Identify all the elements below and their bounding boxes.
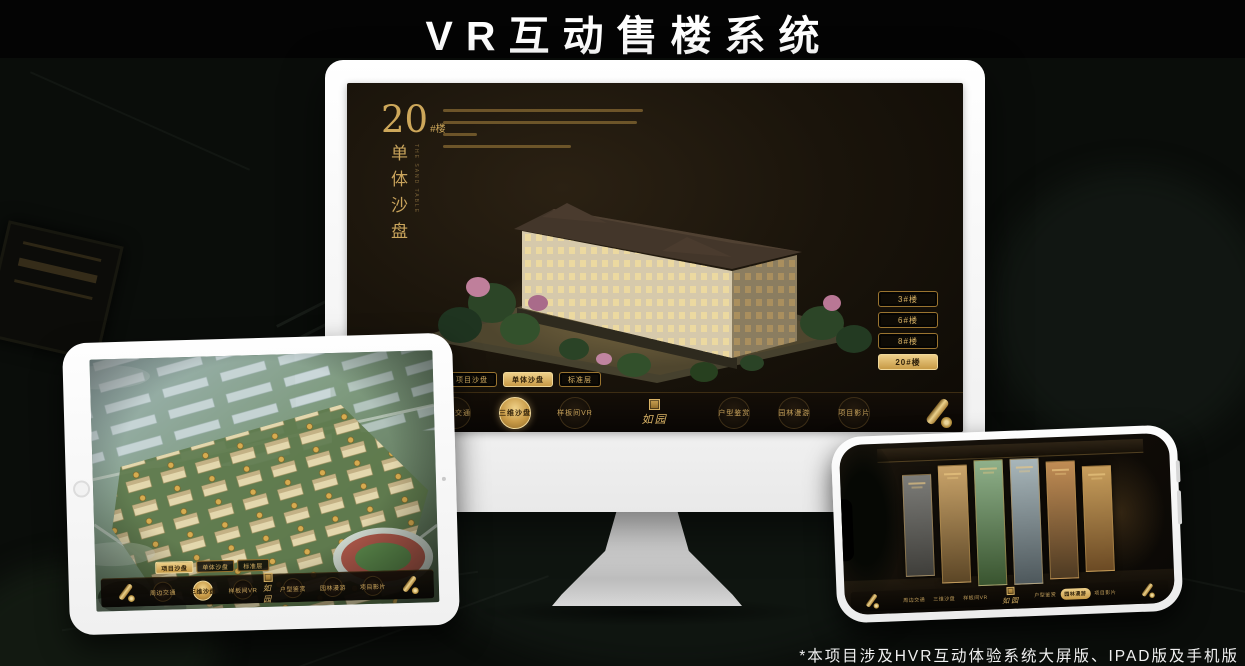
sub-tab-group: 项目沙盘 单体沙盘 标准层 <box>447 372 601 387</box>
brand-logo: 如园 <box>642 399 668 427</box>
brand-logo-text: 如园 <box>1002 595 1020 606</box>
floor-button[interactable]: 20#楼 <box>878 354 938 370</box>
bg-road-line <box>30 71 250 170</box>
floor-button[interactable]: 3#楼 <box>878 291 938 307</box>
nav-item[interactable]: 项目影片 <box>1090 586 1120 598</box>
nav-item[interactable]: 三维沙盘 <box>183 576 224 605</box>
nav-item[interactable]: 周边交通 <box>899 594 929 606</box>
sub-tab[interactable]: 项目沙盘 <box>155 561 193 574</box>
nav-item[interactable]: 园林漫游 <box>764 393 824 433</box>
building-model-viewport[interactable] <box>402 153 887 388</box>
tablet-home-button[interactable] <box>73 480 90 497</box>
brand-logo-text: 如园 <box>642 411 668 427</box>
tablet-device: 项目沙盘 单体沙盘 标准层 周边交通 三维沙盘 样板间VR <box>62 333 460 636</box>
building-3d-render <box>402 153 887 388</box>
nav-group-right: 户型鉴赏 园林漫游 项目影片 <box>1030 586 1120 600</box>
floor-button[interactable]: 6#楼 <box>878 312 938 328</box>
seal-icon <box>263 573 272 582</box>
nav-group-right: 户型鉴赏 园林漫游 项目影片 <box>273 571 394 602</box>
phone-device: 周边交通 三维沙盘 样板间VR 如园 户型鉴赏 园林漫游 <box>831 424 1184 623</box>
tablet-screen: 项目沙盘 单体沙盘 标准层 周边交通 三维沙盘 样板间VR <box>89 350 439 611</box>
scene-panel[interactable] <box>974 459 1008 586</box>
scene-panel[interactable] <box>902 474 935 577</box>
scroll-menu-icon[interactable] <box>115 582 137 604</box>
nav-item[interactable]: 样板间VR <box>223 575 264 604</box>
nav-group-right: 户型鉴赏 园林漫游 项目影片 <box>704 393 884 433</box>
bg-plaque <box>0 220 124 362</box>
seal-icon <box>649 399 660 410</box>
seal-icon <box>1007 586 1015 594</box>
nav-item[interactable]: 样板间VR <box>959 591 992 603</box>
scroll-menu-icon[interactable] <box>399 574 421 596</box>
phone-screen: 周边交通 三维沙盘 样板间VR 如园 户型鉴赏 园林漫游 <box>839 433 1175 616</box>
nav-item[interactable]: 样板间VR <box>545 393 605 433</box>
poster-stage: VR互动售楼系统 20#楼 单体沙盘 THE SAND TABLE <box>0 0 1245 666</box>
phone-volume-button[interactable] <box>1176 460 1181 482</box>
nav-item[interactable]: 三维沙盘 <box>929 592 959 604</box>
scroll-menu-icon[interactable] <box>1139 582 1157 600</box>
phone-power-button[interactable] <box>1177 490 1182 524</box>
floor-button-group: 3#楼 6#楼 8#楼 20#楼 <box>878 291 938 370</box>
nav-item[interactable]: 项目影片 <box>824 393 884 433</box>
scene-panel[interactable] <box>1082 465 1115 572</box>
nav-item[interactable]: 园林漫游 <box>1060 587 1090 599</box>
scene-panel[interactable] <box>1046 460 1080 579</box>
sub-tab[interactable]: 标准层 <box>237 559 269 572</box>
scroll-menu-icon[interactable] <box>863 592 881 610</box>
nav-item[interactable]: 户型鉴赏 <box>704 393 764 433</box>
nav-item[interactable]: 项目影片 <box>353 571 394 600</box>
page-title: VR互动售楼系统 <box>0 2 1245 62</box>
phone-notch <box>841 499 854 561</box>
nav-item[interactable]: 户型鉴赏 <box>1030 589 1060 601</box>
nav-item[interactable]: 周边交通 <box>143 577 184 606</box>
nav-group-left: 周边交通 三维沙盘 样板间VR <box>143 575 264 606</box>
scene-panel-gallery <box>902 455 1116 589</box>
scene-panel[interactable] <box>1010 458 1044 585</box>
sub-tab[interactable]: 项目沙盘 <box>447 372 497 387</box>
nav-item[interactable]: 园林漫游 <box>313 572 354 601</box>
nav-item[interactable]: 户型鉴赏 <box>273 574 314 603</box>
sub-tab[interactable]: 单体沙盘 <box>503 372 553 387</box>
brand-logo-text: 如园 <box>263 583 274 605</box>
nav-item[interactable]: 三维沙盘 <box>485 393 545 433</box>
tablet-camera <box>442 477 446 481</box>
unit-number: 20 <box>381 98 428 141</box>
sub-tab[interactable]: 标准层 <box>559 372 601 387</box>
scroll-menu-icon[interactable] <box>921 396 955 430</box>
nav-group-left: 周边交通 三维沙盘 样板间VR <box>899 591 992 606</box>
footnote: *本项目涉及HVR互动体验系统大屏版、IPAD版及手机版 <box>799 644 1239 666</box>
description-text-lines <box>443 109 643 157</box>
sub-tab[interactable]: 单体沙盘 <box>196 560 234 573</box>
scene-panel[interactable] <box>938 465 972 584</box>
bg-foliage-right <box>990 170 1245 450</box>
brand-logo: 如园 <box>1002 586 1021 606</box>
floor-button[interactable]: 8#楼 <box>878 333 938 349</box>
